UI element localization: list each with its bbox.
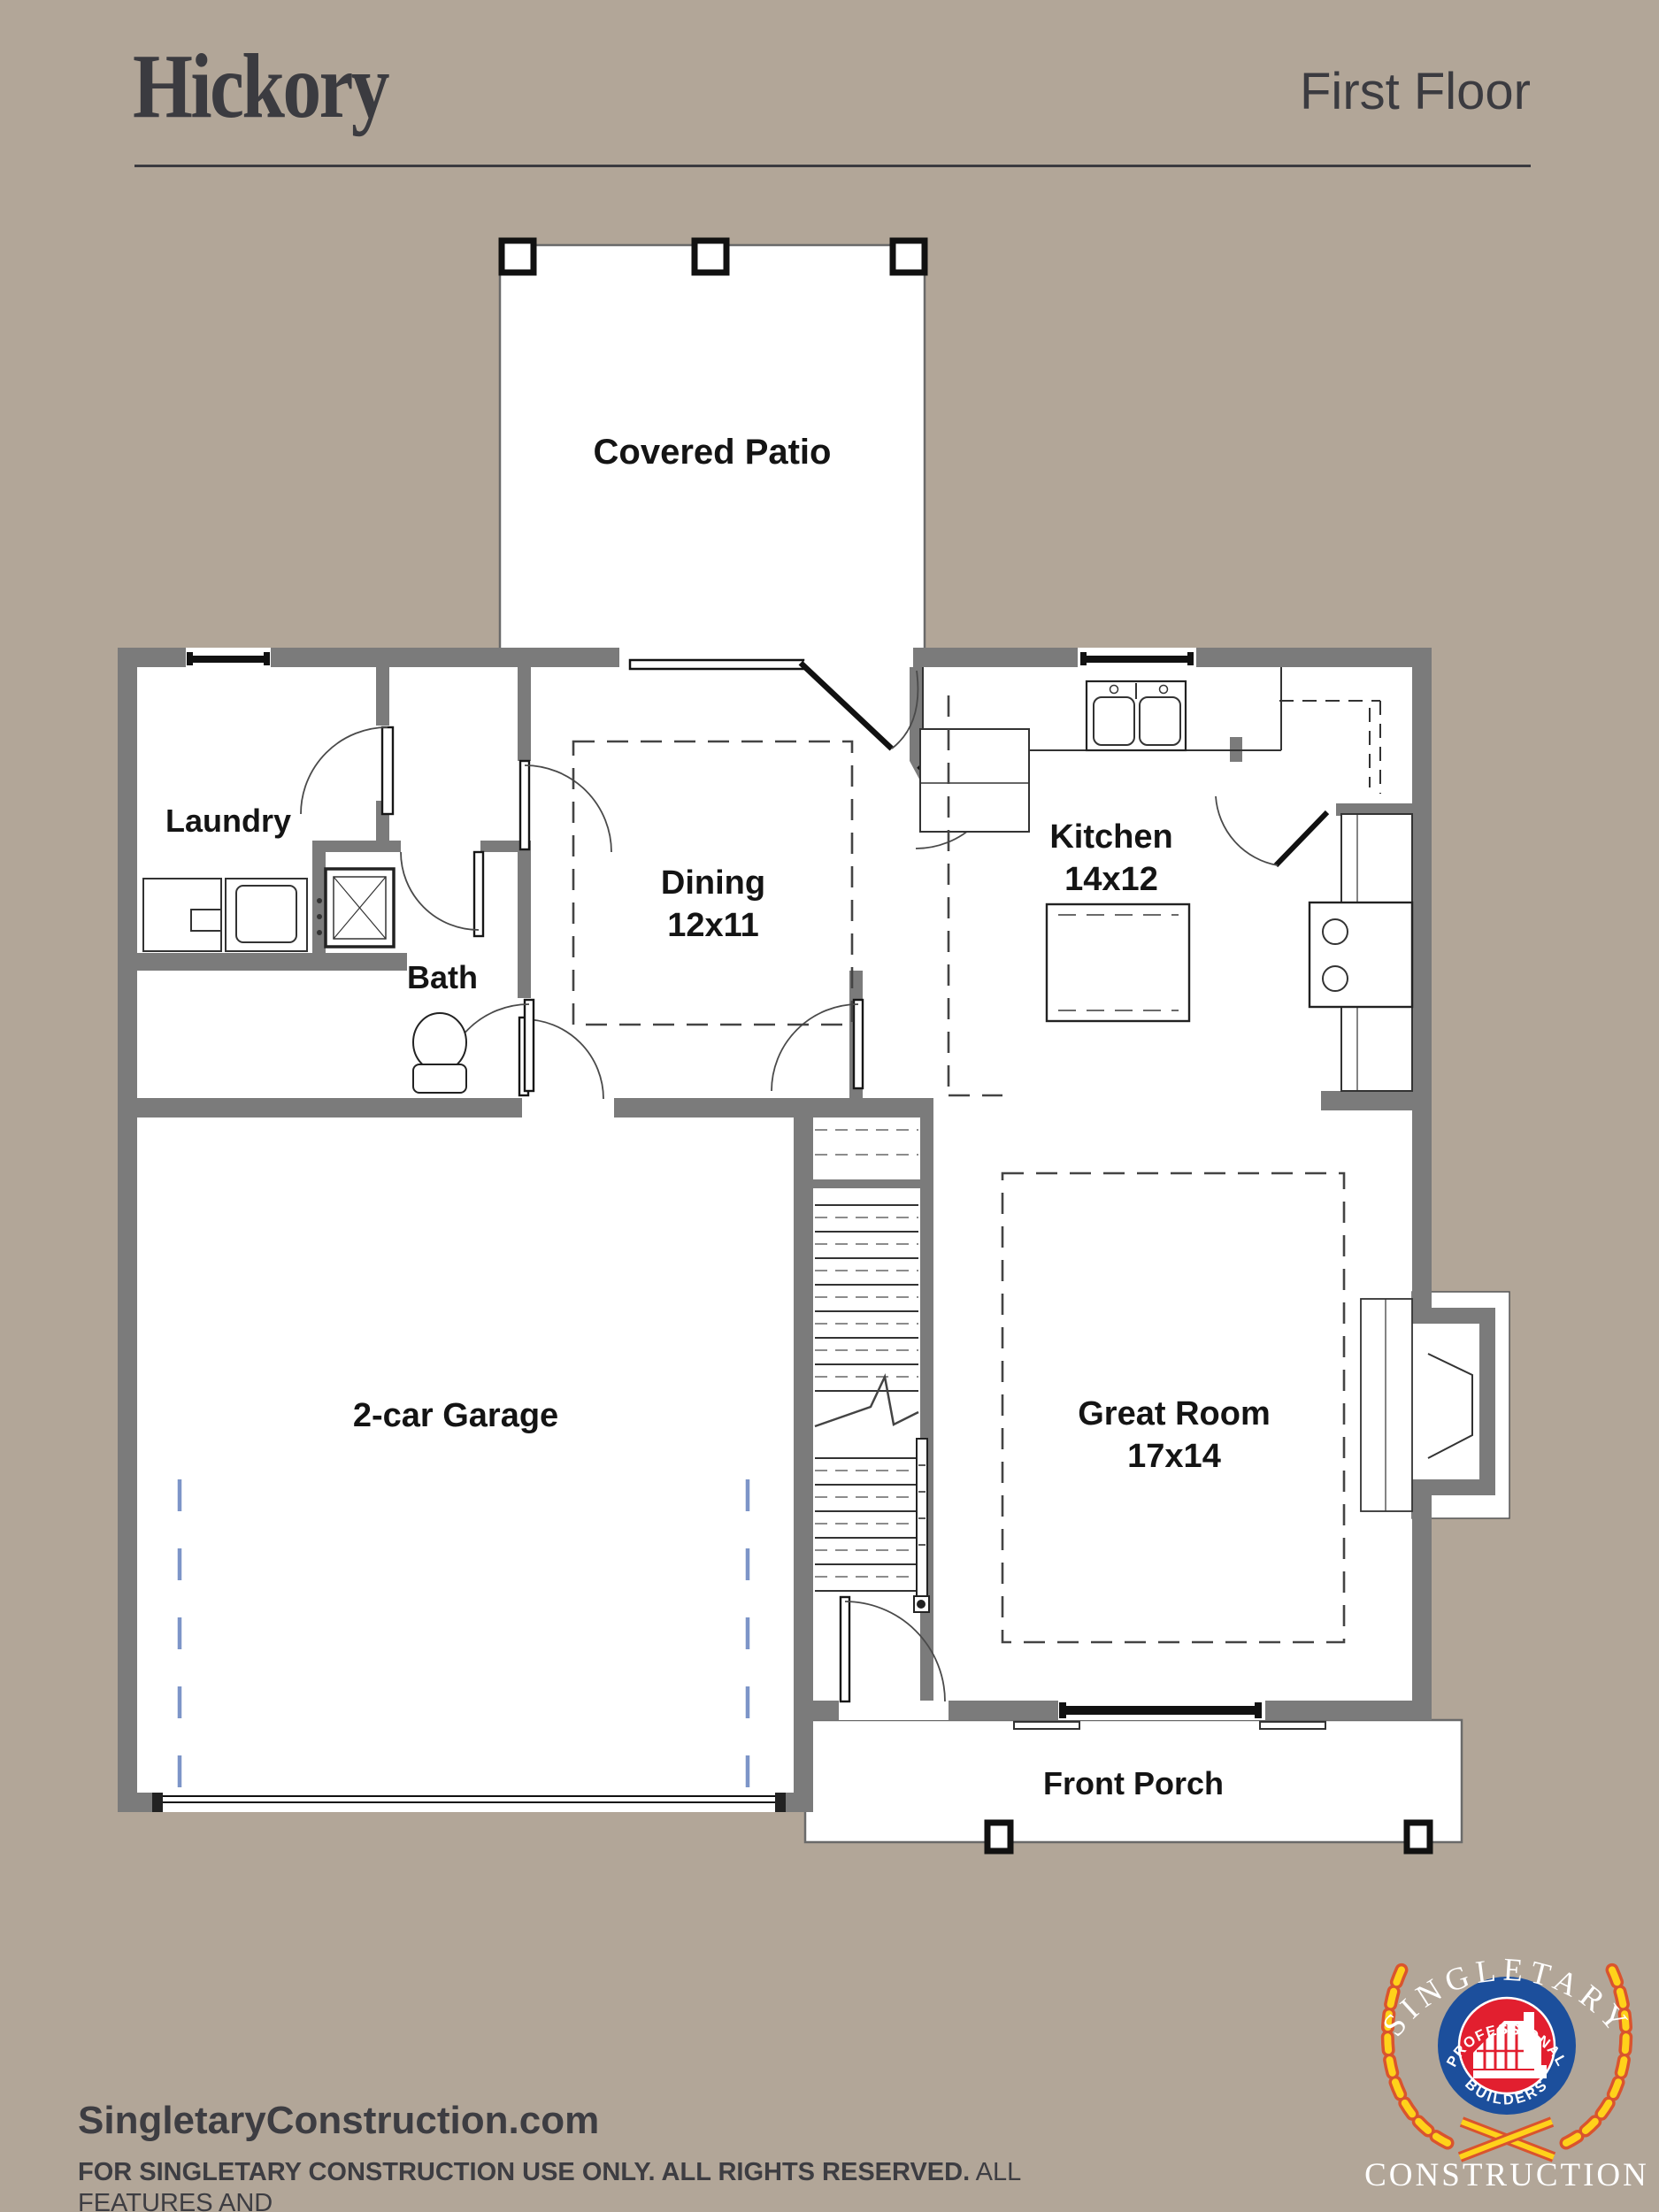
- stair-rail: [917, 1439, 927, 1600]
- bath-label: Bath: [407, 959, 478, 995]
- porch-post: [1407, 1823, 1430, 1851]
- garage-label: 2-car Garage: [353, 1397, 558, 1434]
- front-window: [1064, 1706, 1260, 1715]
- dining-label: Dining: [661, 864, 765, 902]
- disclaimer: FOR SINGLETARY CONSTRUCTION USE ONLY. AL…: [78, 2157, 1069, 2212]
- laundry-window: [191, 656, 265, 663]
- kitchen-window: [1085, 656, 1189, 663]
- patio-post: [502, 241, 534, 273]
- floorplan-sheet: Hickory First Floor: [0, 0, 1659, 2212]
- great-room-dims: 17x14: [1127, 1438, 1221, 1475]
- covered-patio-label: Covered Patio: [594, 433, 832, 472]
- website-url: SingletaryConstruction.com: [78, 2099, 599, 2143]
- logo-construction-label: CONSTRUCTION: [1364, 2157, 1649, 2193]
- kitchen-label: Kitchen: [1049, 818, 1172, 856]
- kitchen-island: [1047, 904, 1189, 1021]
- laundry-label: Laundry: [165, 803, 291, 839]
- range: [1310, 902, 1412, 1007]
- patio-post: [893, 241, 925, 273]
- front-porch-label: Front Porch: [1043, 1765, 1224, 1801]
- house-footprint: [118, 648, 1432, 1812]
- porch-post: [987, 1823, 1010, 1851]
- kitchen-dims: 14x12: [1064, 861, 1158, 898]
- company-logo: SINGLETARY PROFESSIONAL BUILDERS CONSTRU…: [1364, 1951, 1649, 2193]
- floor-plan-drawing: Covered Patio Laundry Bath Dining 12x11 …: [0, 0, 1659, 2212]
- hearth: [1361, 1299, 1412, 1511]
- laundry-appliances: [143, 879, 307, 951]
- dining-dims: 12x11: [667, 907, 759, 944]
- disclaimer-bold: FOR SINGLETARY CONSTRUCTION USE ONLY. AL…: [78, 2158, 970, 2186]
- great-room-label: Great Room: [1078, 1395, 1270, 1432]
- patio-post: [695, 241, 726, 273]
